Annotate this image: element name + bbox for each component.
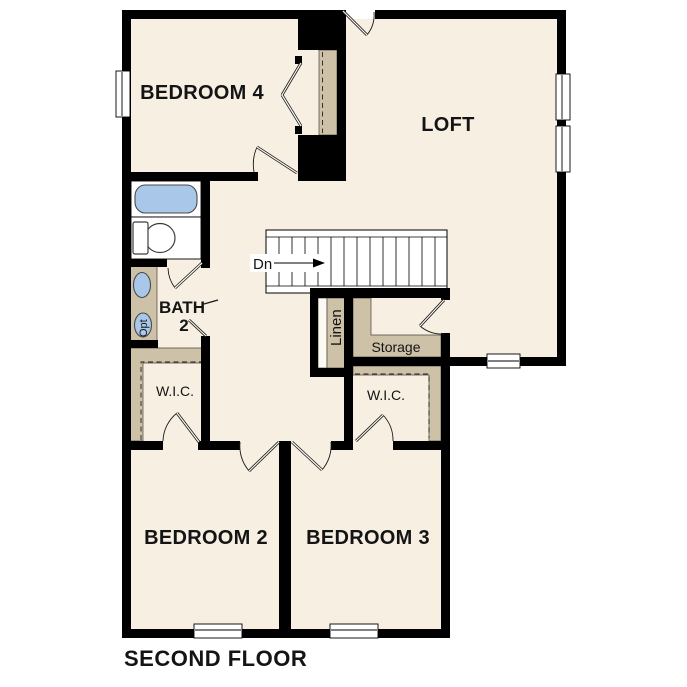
optional-sink-label: Opt <box>138 319 150 337</box>
bedroom4-closet-shelf <box>319 50 337 135</box>
wall-segment <box>393 441 441 450</box>
toilet-bowl <box>145 224 175 253</box>
bedroom3-label: BEDROOM 3 <box>306 527 430 549</box>
loft-window-lower <box>556 126 570 172</box>
loft-floor <box>346 19 557 357</box>
bedroom3-window <box>330 624 378 638</box>
wic-left-label: W.I.C. <box>156 383 194 399</box>
linen-label: Linen <box>328 309 345 346</box>
wall-segment <box>198 441 240 450</box>
loft-label: LOFT <box>421 114 474 136</box>
bedroom2-label: BEDROOM 2 <box>144 527 268 549</box>
wall-segment <box>298 135 337 181</box>
wall-segment <box>557 10 566 366</box>
wall-segment <box>201 172 210 268</box>
stairs-down-label: Dn <box>253 256 272 273</box>
loft-bottom-window <box>487 354 520 368</box>
wall-segment <box>298 10 337 50</box>
wic-right-label: W.I.C. <box>367 387 405 403</box>
toilet-tank <box>133 222 148 254</box>
wall-segment <box>122 441 163 450</box>
wall-segment <box>344 288 353 449</box>
closet-jamb <box>295 56 302 64</box>
wall-segment <box>131 259 167 267</box>
bedroom4-window <box>116 71 130 117</box>
bedroom2-window <box>194 624 242 638</box>
wall-segment <box>337 10 346 181</box>
vanity-sink <box>134 273 151 298</box>
wall-segment <box>441 288 450 300</box>
floorplan-page: Dn Opt <box>0 0 687 687</box>
wall-segment <box>310 368 345 377</box>
storage-label: Storage <box>371 339 420 355</box>
bedroom4-label: BEDROOM 4 <box>140 82 264 104</box>
linen-floor-strip <box>318 298 327 368</box>
wall-segment <box>310 288 318 377</box>
bath-label-line2: 2 <box>179 316 188 335</box>
page-title: SECOND FLOOR <box>124 646 307 671</box>
wall-segment <box>279 441 291 638</box>
bath-label-line1: BATH <box>159 298 205 317</box>
wall-segment <box>122 629 450 638</box>
loft-window-upper <box>556 74 570 120</box>
wall-segment <box>122 340 158 348</box>
wall-segment <box>353 357 566 366</box>
wall-segment <box>201 336 210 449</box>
wall-segment <box>122 172 258 181</box>
closet-jamb <box>295 126 302 134</box>
wall-segment <box>310 288 450 298</box>
wall-segment <box>375 10 566 19</box>
second-floor-plan: Dn Opt <box>0 0 687 687</box>
bathtub <box>135 185 197 213</box>
stairs: Dn <box>250 230 447 293</box>
wall-segment <box>441 357 450 638</box>
